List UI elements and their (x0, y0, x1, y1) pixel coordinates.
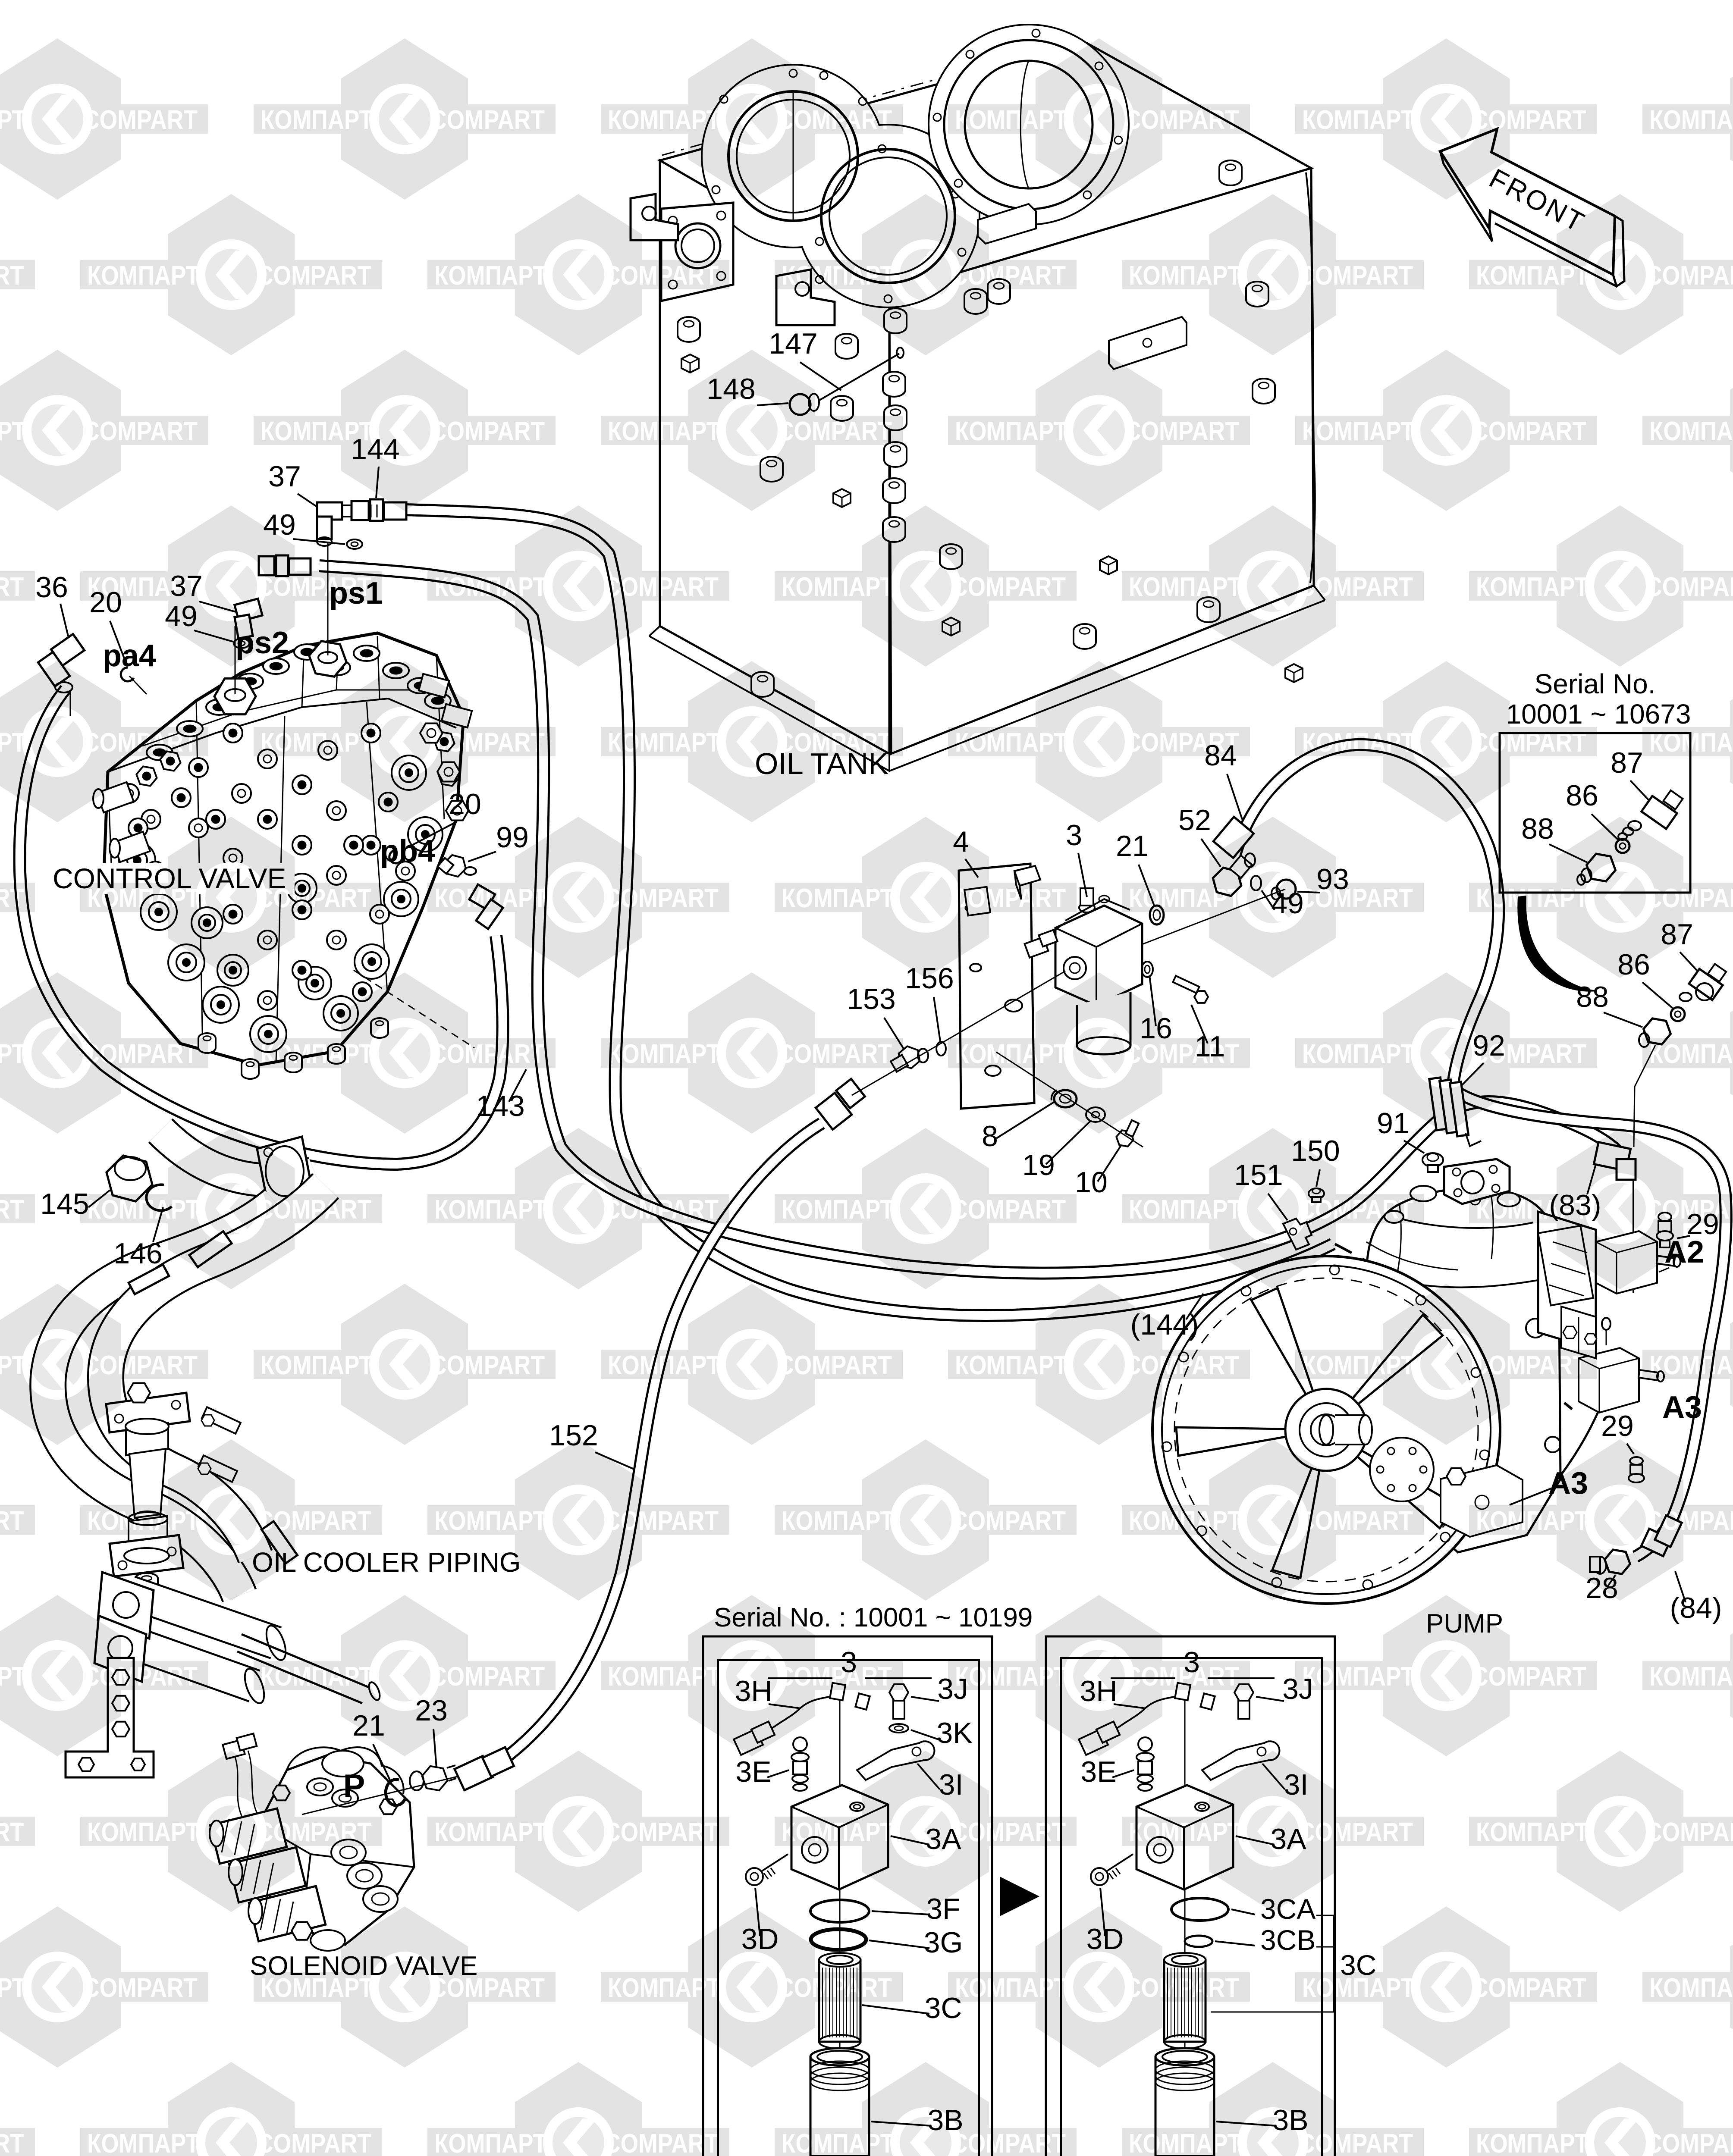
svg-text:91: 91 (1377, 1107, 1410, 1140)
svg-text:8: 8 (982, 1120, 998, 1153)
svg-text:99: 99 (496, 821, 529, 854)
svg-text:A3: A3 (1662, 1390, 1702, 1425)
svg-text:3CB: 3CB (1260, 1924, 1315, 1956)
svg-text:88: 88 (1521, 812, 1554, 845)
svg-text:3K: 3K (936, 1717, 972, 1749)
svg-text:P: P (343, 1768, 365, 1805)
svg-text:Serial No.: Serial No. (1535, 668, 1656, 699)
svg-text:(84): (84) (1670, 1592, 1722, 1624)
svg-text:3E: 3E (735, 1755, 771, 1788)
svg-text:52: 52 (1178, 804, 1211, 837)
svg-text:86: 86 (1566, 779, 1598, 812)
svg-text:pb4: pb4 (380, 834, 435, 868)
svg-text:36: 36 (35, 571, 68, 604)
svg-text:153: 153 (847, 983, 895, 1015)
svg-text:10: 10 (1075, 1166, 1108, 1199)
svg-text:88: 88 (1576, 981, 1609, 1013)
svg-text:21: 21 (1116, 830, 1149, 862)
svg-text:20: 20 (449, 788, 481, 821)
svg-text:87: 87 (1611, 746, 1643, 779)
svg-text:3E: 3E (1080, 1755, 1116, 1788)
svg-text:pa4: pa4 (103, 639, 156, 673)
svg-text:10001 ~ 10673: 10001 ~ 10673 (1506, 699, 1691, 730)
svg-text:146: 146 (113, 1237, 162, 1270)
svg-text:143: 143 (476, 1090, 524, 1122)
svg-text:3: 3 (1066, 819, 1082, 852)
svg-text:19: 19 (1022, 1149, 1055, 1181)
svg-text:3G: 3G (924, 1926, 963, 1959)
svg-text:147: 147 (769, 327, 817, 360)
svg-text:29: 29 (1601, 1410, 1634, 1442)
svg-text:37: 37 (268, 460, 301, 493)
